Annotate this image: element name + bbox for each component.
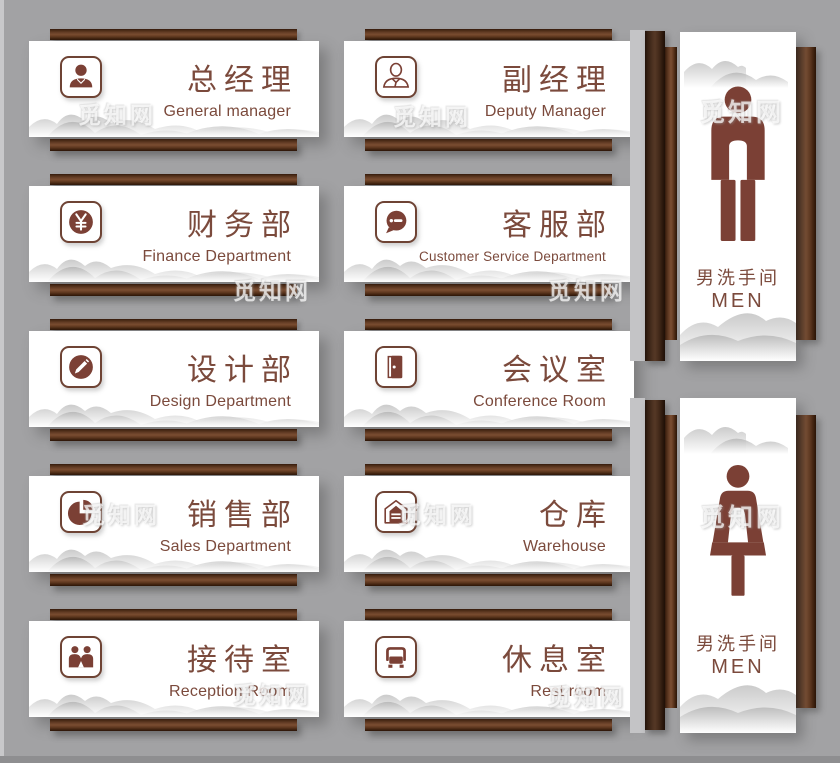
mountain-decoration [680, 408, 796, 454]
sign-text: 仓库 Warehouse [523, 499, 606, 556]
sign-restroom-men: 男洗手间 MEN [630, 28, 816, 365]
wood-rail-bottom [50, 429, 297, 441]
sign-title-zh: 设计部 [150, 354, 298, 388]
sign-panel: 总经理 General manager [29, 41, 319, 137]
sign-sales-department: 销售部 Sales Department [29, 464, 319, 586]
sign-panel: 仓库 Warehouse [344, 476, 634, 572]
wood-rail-top [50, 29, 297, 40]
restroom-title-en: MEN [680, 290, 796, 313]
sign-panel: 设计部 Design Department [29, 331, 319, 427]
sign-panel: 接待室 Reception Room [29, 621, 319, 717]
sign-panel: 客服部 Customer Service Department [344, 186, 634, 282]
sign-text: 设计部 Design Department [150, 354, 291, 411]
wood-rail-top [50, 464, 297, 475]
wood-rail-top [365, 464, 612, 475]
board-left-edge [0, 0, 4, 763]
yen-coin-icon [60, 201, 102, 243]
sign-rest-room: 休息室 Rest room [344, 609, 634, 731]
sign-title-zh: 会议室 [473, 354, 613, 388]
wood-rail-bottom [365, 284, 612, 296]
open-door-icon [375, 346, 417, 388]
sign-conference-room: 会议室 Conference Room [344, 319, 634, 441]
wood-rail-bottom [365, 139, 612, 151]
sign-title-en: Design Department [150, 393, 291, 411]
sign-title-en: Conference Room [473, 393, 606, 411]
wood-rail-top [365, 609, 612, 620]
wood-rail-bottom [50, 139, 297, 151]
sign-title-en: Deputy Manager [485, 103, 606, 121]
backing-strip [630, 30, 645, 361]
wood-rail-bottom [365, 574, 612, 586]
sign-general-manager: 总经理 General manager [29, 29, 319, 151]
sign-title-zh: 休息室 [502, 644, 613, 678]
sign-title-zh: 接待室 [169, 644, 298, 678]
sign-reception-room: 接待室 Reception Room [29, 609, 319, 731]
board-bottom-edge [0, 756, 840, 763]
sign-title-en: Reception Room [169, 683, 291, 701]
backing-strip [630, 398, 645, 733]
wood-post-right [796, 47, 816, 340]
sign-panel: 副经理 Deputy Manager [344, 41, 634, 137]
sign-text: 副经理 Deputy Manager [485, 64, 606, 121]
sign-title-zh: 仓库 [523, 499, 613, 533]
sign-panel: 男洗手间 MEN [680, 32, 796, 361]
wood-rail-top [50, 319, 297, 330]
wood-rail-top [365, 319, 612, 330]
handshake-icon [60, 636, 102, 678]
signage-board: 总经理 General manager 副经理 Deputy Manager 财… [0, 0, 840, 763]
pie-chart-icon [60, 491, 102, 533]
mountain-decoration [680, 42, 796, 88]
sign-title-zh: 客服部 [419, 209, 613, 243]
sign-title-en: Rest room [502, 683, 606, 701]
restroom-title-en: MEN [680, 656, 796, 679]
sign-panel: 休息室 Rest room [344, 621, 634, 717]
armchair-icon [375, 636, 417, 678]
sign-customer-service-department: 客服部 Customer Service Department [344, 174, 634, 296]
sign-panel: 会议室 Conference Room [344, 331, 634, 427]
sign-warehouse: 仓库 Warehouse [344, 464, 634, 586]
sign-deputy-manager: 副经理 Deputy Manager [344, 29, 634, 151]
person-filled-icon [60, 56, 102, 98]
sign-title-en: Sales Department [160, 538, 291, 556]
wood-rail-bottom [50, 284, 297, 296]
sign-restroom-women-panel: 男洗手间 MEN [630, 396, 816, 733]
restroom-title-zh: 男洗手间 [680, 264, 796, 290]
wood-rail-bottom [365, 719, 612, 731]
warehouse-icon [375, 491, 417, 533]
wood-post-outer [645, 31, 665, 361]
wood-rail-top [365, 174, 612, 185]
sign-title-en: Warehouse [523, 538, 606, 556]
female-figure-icon [703, 456, 773, 606]
wood-post-inner [665, 47, 677, 340]
sign-title-zh: 总经理 [163, 64, 298, 98]
sign-title-zh: 销售部 [160, 499, 298, 533]
sign-panel: 财务部 Finance Department [29, 186, 319, 282]
wood-rail-top [50, 174, 297, 185]
sign-title-en: Finance Department [142, 248, 291, 266]
sign-title-en: Customer Service Department [419, 248, 606, 266]
sign-panel: 销售部 Sales Department [29, 476, 319, 572]
sign-text: 会议室 Conference Room [473, 354, 606, 411]
person-outline-icon [375, 56, 417, 98]
male-figure-icon [706, 86, 770, 244]
sign-design-department: 设计部 Design Department [29, 319, 319, 441]
restroom-title-zh: 男洗手间 [680, 630, 796, 656]
sign-text: 财务部 Finance Department [142, 209, 291, 266]
sign-title-en: General manager [163, 103, 291, 121]
wood-post-outer [645, 400, 665, 730]
wood-post-right [796, 415, 816, 708]
wood-rail-top [50, 609, 297, 620]
wood-rail-top [365, 29, 612, 40]
sign-text: 销售部 Sales Department [160, 499, 291, 556]
sign-text: 接待室 Reception Room [169, 644, 291, 701]
sign-panel: 男洗手间 MEN [680, 398, 796, 733]
sign-title-zh: 副经理 [485, 64, 613, 98]
sign-text: 客服部 Customer Service Department [419, 209, 606, 266]
sign-title-zh: 财务部 [142, 209, 298, 243]
pencil-icon [60, 346, 102, 388]
sign-finance-department: 财务部 Finance Department [29, 174, 319, 296]
sign-text: 休息室 Rest room [502, 644, 606, 701]
sign-text: 总经理 General manager [163, 64, 291, 121]
wood-rail-bottom [50, 719, 297, 731]
chat-bubble-icon [375, 201, 417, 243]
wood-rail-bottom [50, 574, 297, 586]
wood-post-inner [665, 415, 677, 708]
wood-rail-bottom [365, 429, 612, 441]
